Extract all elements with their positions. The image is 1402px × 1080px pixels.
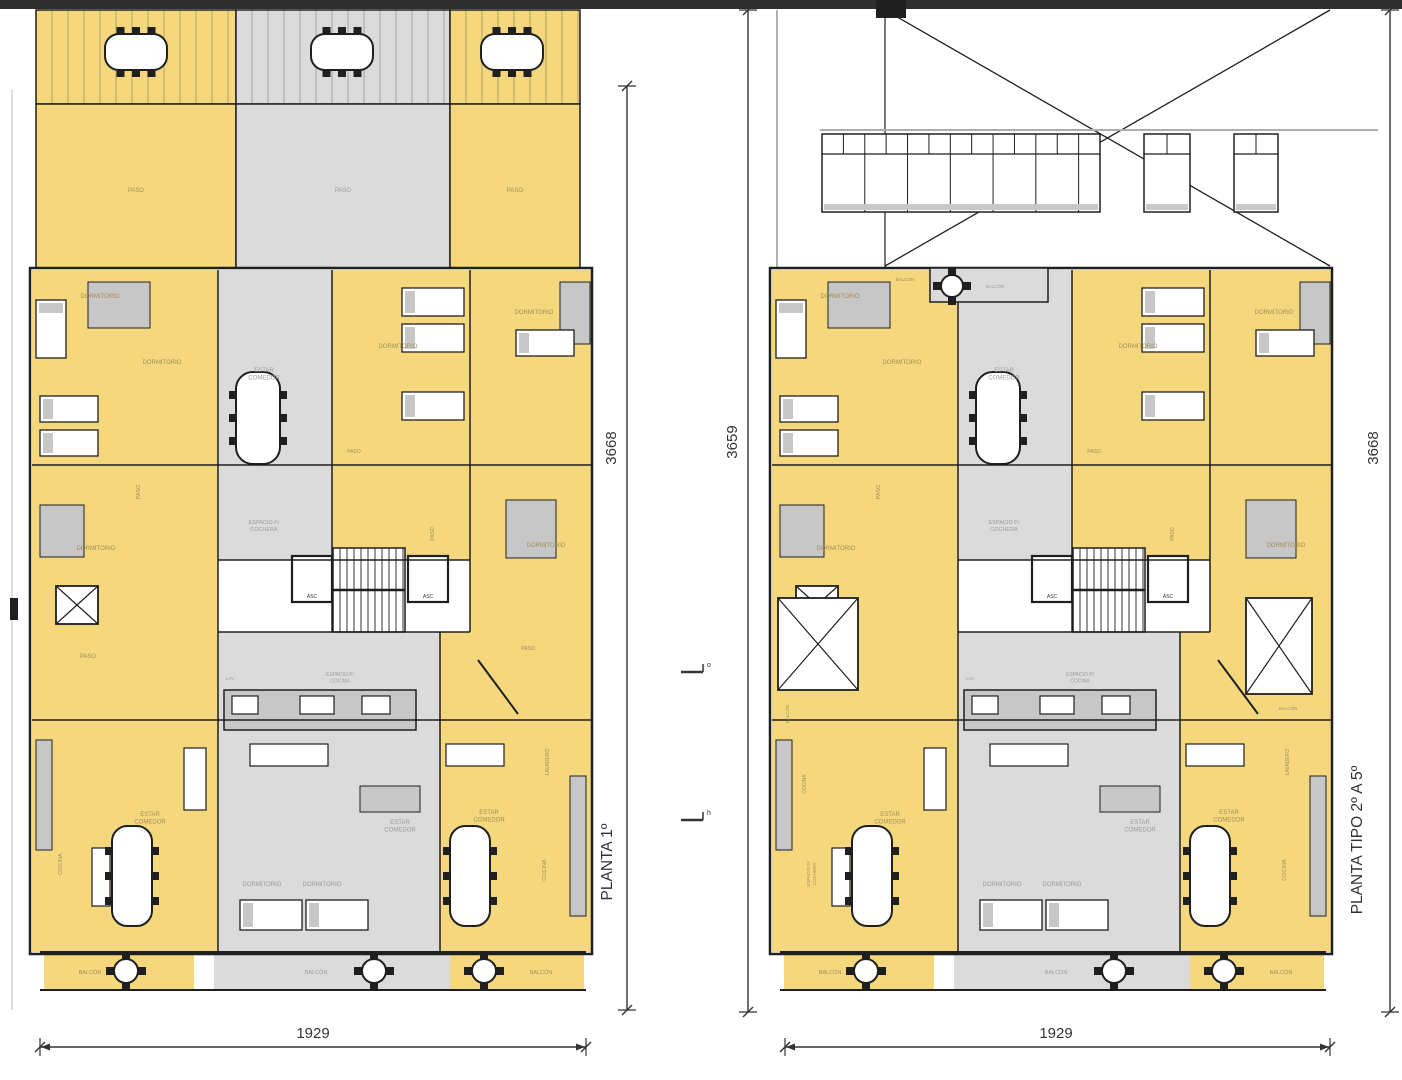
room-label: PASO <box>136 484 142 500</box>
room-label: DORMITORIO <box>883 360 922 366</box>
room-label: BALCÓN <box>530 969 553 976</box>
chair <box>323 27 331 34</box>
chair <box>152 897 159 905</box>
room-label: PASO <box>347 449 361 455</box>
room-label: BALCÓN <box>819 969 842 976</box>
room-area <box>360 786 420 812</box>
dining-table <box>112 826 152 926</box>
chair <box>1230 872 1237 880</box>
chair <box>152 847 159 855</box>
room-label: COCINA <box>1282 859 1288 881</box>
chair <box>969 391 976 399</box>
pillow <box>519 333 529 353</box>
room-area <box>214 952 450 990</box>
room-area <box>0 0 1402 9</box>
window-sill <box>1146 204 1188 210</box>
chair <box>969 437 976 445</box>
room-label: DORMITORIO <box>1255 310 1294 316</box>
chair <box>280 414 287 422</box>
chair <box>1183 847 1190 855</box>
chair <box>496 967 504 975</box>
room-label: COCINA <box>542 859 548 881</box>
plan-title-planta-tipo: PLANTA TIPO 2º A 5º <box>1349 765 1366 914</box>
chair <box>105 872 112 880</box>
furniture <box>446 744 504 766</box>
chair <box>354 70 362 77</box>
chair <box>1020 414 1027 422</box>
round-table <box>472 959 496 983</box>
chair <box>1230 847 1237 855</box>
dining-table <box>1190 826 1230 926</box>
room-label: COCINA <box>802 774 808 794</box>
dim-label-left-bottom: 1929 <box>296 1025 329 1042</box>
chair <box>524 70 532 77</box>
room-area <box>1310 776 1326 916</box>
dining-table <box>852 826 892 926</box>
room-label: LAV <box>966 676 974 681</box>
chair <box>148 27 156 34</box>
chair <box>106 967 114 975</box>
room-label: DORMITORIO <box>515 310 554 316</box>
pillow <box>783 399 793 419</box>
chair <box>524 27 532 34</box>
plan-title-planta-1: PLANTA 1º <box>599 823 616 900</box>
round-table <box>362 959 386 983</box>
chair <box>1183 897 1190 905</box>
chair <box>117 27 125 34</box>
room-area <box>36 104 236 268</box>
chair <box>1020 391 1027 399</box>
room-area <box>1246 500 1296 558</box>
pillow <box>1259 333 1269 353</box>
round-table <box>114 959 138 983</box>
room-area <box>450 104 580 268</box>
room-label: DORMITORIO <box>81 294 120 300</box>
chair <box>117 70 125 77</box>
window-sill <box>1236 204 1276 210</box>
chair <box>892 872 899 880</box>
room-label: DORMITORIO <box>243 882 282 888</box>
chair <box>845 897 852 905</box>
furniture <box>300 696 334 714</box>
room-label: ASC <box>307 594 318 600</box>
room-label: LAVADERO <box>1285 749 1291 776</box>
room-label: DORMITORIO <box>983 882 1022 888</box>
drawing-layer: ohPASOPASOPASODORMITORIODORMITORIODORMIT… <box>0 0 1402 1056</box>
chair <box>105 897 112 905</box>
room-area <box>10 598 18 620</box>
room-label: BALCÓN <box>1045 969 1068 976</box>
chair <box>845 847 852 855</box>
furniture <box>1040 696 1074 714</box>
room-label: DORMITORIO <box>77 546 116 552</box>
chair <box>1204 967 1212 975</box>
room-area <box>332 465 470 560</box>
chair <box>846 967 854 975</box>
dining-table <box>236 372 280 464</box>
room-label: PASO <box>1087 449 1101 455</box>
furniture <box>1186 744 1244 766</box>
room-label: ASC <box>1047 594 1058 600</box>
furniture <box>232 696 258 714</box>
room-area <box>440 632 592 720</box>
room-area <box>570 776 586 916</box>
floorplan-canvas: ohPASOPASOPASODORMITORIODORMITORIODORMIT… <box>0 0 1402 1080</box>
chair <box>508 27 516 34</box>
room-label: DORMITORIO <box>1267 543 1306 549</box>
level-marker: h <box>707 810 711 817</box>
room-label: PASO <box>128 188 145 194</box>
pillow <box>405 291 415 313</box>
chair <box>229 391 236 399</box>
chair <box>132 70 140 77</box>
floorplan-sheet: ohPASOPASOPASODORMITORIODORMITORIODORMIT… <box>0 0 1402 1080</box>
room-area <box>1072 465 1210 560</box>
room-label: LAV <box>226 676 234 681</box>
room-label: BALCÓN <box>896 276 915 282</box>
round-table <box>1102 959 1126 983</box>
room-label: PASO <box>1170 527 1176 541</box>
dim-label-left-side: 3668 <box>603 431 620 464</box>
round-table <box>941 275 963 297</box>
chair <box>1094 967 1102 975</box>
chair <box>138 967 146 975</box>
room-area <box>776 740 792 850</box>
dining-table <box>976 372 1020 464</box>
chair <box>493 70 501 77</box>
room-label: COCINA <box>58 853 64 875</box>
window-band <box>822 134 1100 212</box>
room-label: DORMITORIO <box>379 344 418 350</box>
dining-table <box>481 34 543 70</box>
chair <box>338 27 346 34</box>
furniture <box>362 696 390 714</box>
chair <box>948 297 956 305</box>
chair <box>963 282 971 290</box>
pillow <box>43 399 53 419</box>
furniture <box>990 744 1068 766</box>
round-table <box>854 959 878 983</box>
room-label: ESPACIO P/COCHERA <box>249 520 280 533</box>
room-label: ESPACIO P/COCHERA <box>989 520 1020 533</box>
room-label: BALCÓN <box>79 969 102 976</box>
chair <box>229 414 236 422</box>
room-label: PASO <box>876 484 882 500</box>
furniture <box>184 748 206 810</box>
window-sill <box>824 204 1098 210</box>
chair <box>354 27 362 34</box>
chair <box>280 391 287 399</box>
chair <box>338 70 346 77</box>
chair <box>323 70 331 77</box>
room-label: BALCÓN <box>1279 705 1298 711</box>
chair <box>280 437 287 445</box>
room-label: BALCÓN <box>1270 969 1293 976</box>
dining-table <box>105 34 167 70</box>
chair <box>1126 967 1134 975</box>
chair <box>892 847 899 855</box>
room-label: DORMITORIO <box>1043 882 1082 888</box>
chair <box>229 437 236 445</box>
room-label: BALCÓN <box>305 969 328 976</box>
furniture <box>972 696 998 714</box>
chair <box>148 70 156 77</box>
chair <box>845 872 852 880</box>
chair <box>443 897 450 905</box>
pillow <box>243 903 253 927</box>
pillow <box>1145 291 1155 313</box>
room-area <box>506 500 556 558</box>
chair <box>490 897 497 905</box>
room-label: PASO <box>80 654 97 660</box>
room-label: DORMITORIO <box>303 882 342 888</box>
chair <box>948 267 956 275</box>
chair <box>443 847 450 855</box>
pillow <box>39 303 63 313</box>
room-label: LAVADERO <box>545 749 551 776</box>
pillow <box>309 903 319 927</box>
round-table <box>1212 959 1236 983</box>
chair <box>1183 872 1190 880</box>
room-area <box>88 282 150 328</box>
room-label: BALCÓN <box>784 705 790 724</box>
chair <box>490 872 497 880</box>
chair <box>490 847 497 855</box>
room-area <box>36 740 52 850</box>
dining-table <box>311 34 373 70</box>
room-label: DORMITORIO <box>817 546 856 552</box>
chair <box>878 967 886 975</box>
furniture <box>1102 696 1130 714</box>
room-label: ESPACIO P/COCHERA <box>806 861 817 887</box>
chair <box>152 872 159 880</box>
room-label: PASO <box>507 188 524 194</box>
room-label: DORMITORIO <box>821 294 860 300</box>
pillow <box>1049 903 1059 927</box>
room-label: BALCÓN <box>986 283 1005 289</box>
pillow <box>405 395 415 417</box>
room-area <box>954 952 1190 990</box>
pillow <box>779 303 803 313</box>
pillow <box>983 903 993 927</box>
pillow <box>43 433 53 453</box>
dining-table <box>450 826 490 926</box>
pillow <box>1145 395 1155 417</box>
dim-label-right-side: 3668 <box>1365 431 1382 464</box>
room-label: PASO <box>521 646 535 652</box>
chair <box>1236 967 1244 975</box>
room-area <box>1100 786 1160 812</box>
chair <box>508 70 516 77</box>
chair <box>493 27 501 34</box>
chair <box>892 897 899 905</box>
furniture <box>250 744 328 766</box>
room-area <box>236 104 450 268</box>
chair <box>1020 437 1027 445</box>
level-marker: o <box>707 662 711 669</box>
chair <box>464 967 472 975</box>
furniture <box>924 748 946 810</box>
room-label: ASC <box>423 594 434 600</box>
room-label: DORMITORIO <box>1119 344 1158 350</box>
room-label: DORMITORIO <box>143 360 182 366</box>
chair <box>1230 897 1237 905</box>
chair <box>354 967 362 975</box>
room-label: PASO <box>430 527 436 541</box>
room-area <box>876 0 906 18</box>
dim-label-right-left: 3659 <box>724 425 741 458</box>
pillow <box>783 433 793 453</box>
chair <box>105 847 112 855</box>
dim-label-right-bottom: 1929 <box>1039 1025 1072 1042</box>
room-area <box>828 282 890 328</box>
chair <box>386 967 394 975</box>
chair <box>443 872 450 880</box>
chair <box>132 27 140 34</box>
chair <box>969 414 976 422</box>
room-label: DORMITORIO <box>527 543 566 549</box>
room-label: ASC <box>1163 594 1174 600</box>
room-label: PASO <box>335 188 352 194</box>
chair <box>933 282 941 290</box>
